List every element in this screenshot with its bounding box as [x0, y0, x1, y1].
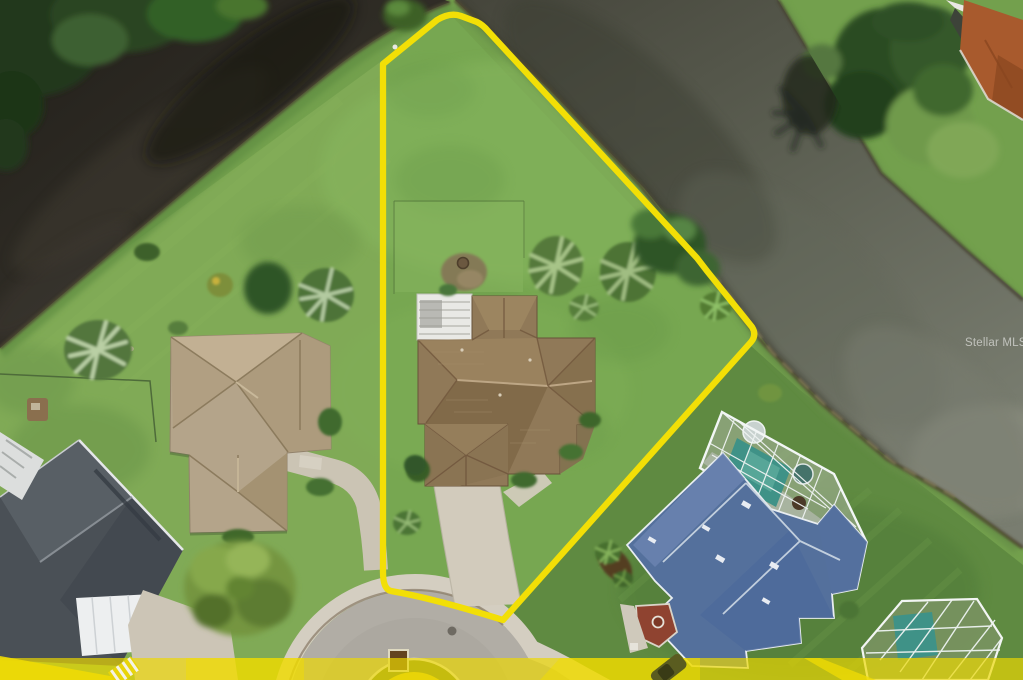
svg-text:Stellar MLS: Stellar MLS [965, 337, 1023, 349]
